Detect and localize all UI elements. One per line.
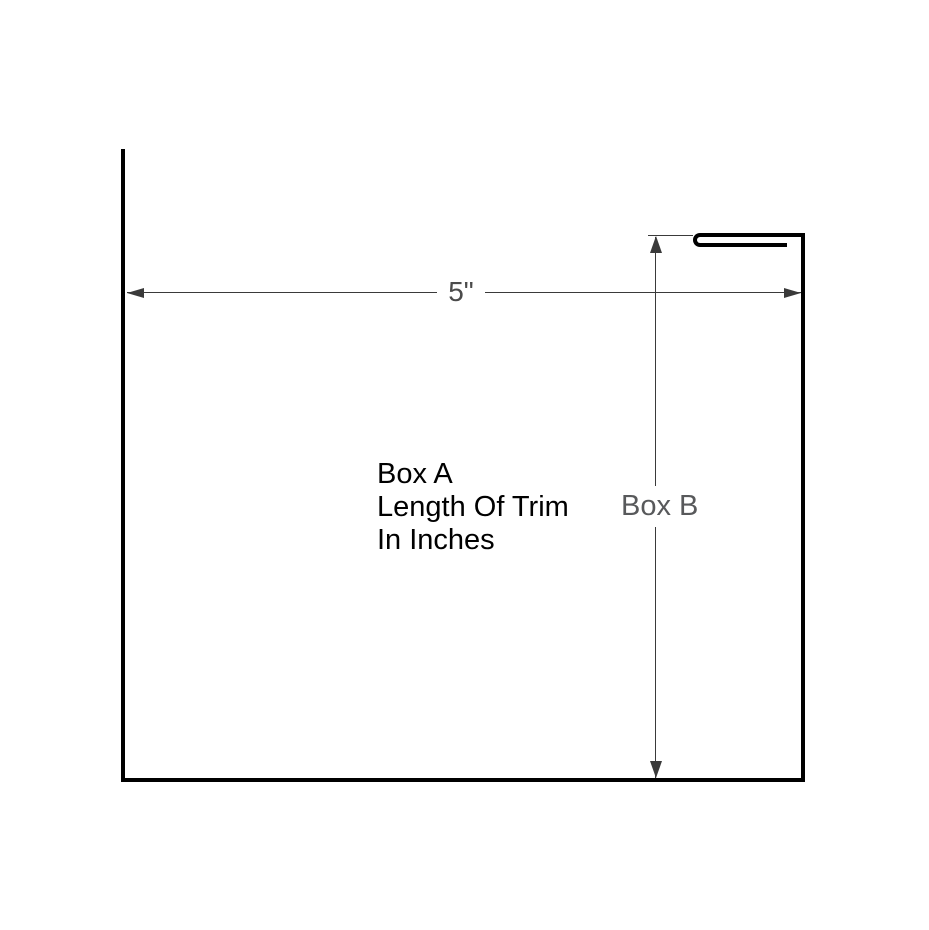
horizontal-dimension-label: 5" (437, 276, 485, 308)
hem-hook-return-edge (702, 243, 787, 247)
trim-profile-right-edge (801, 233, 805, 782)
vertical-dimension-label: Box B (620, 490, 699, 523)
dimension-arrow-up-icon (650, 236, 662, 253)
box-a-annotation-line3: In Inches (377, 524, 569, 557)
dimension-arrow-left-icon (127, 288, 144, 298)
trim-profile-left-edge (121, 149, 125, 782)
hem-hook-bend (693, 233, 705, 247)
box-a-annotation: Box A Length Of Trim In Inches (377, 458, 569, 557)
vertical-dimension-line-top-segment (655, 237, 656, 486)
trim-diagram-canvas: 5" Box B Box A Length Of Trim In Inches (0, 0, 929, 930)
dimension-arrow-right-icon (784, 288, 801, 298)
vertical-dimension-line-bottom-segment (655, 527, 656, 778)
box-a-annotation-line1: Box A (377, 458, 569, 491)
box-a-annotation-line2: Length Of Trim (377, 491, 569, 524)
horizontal-dimension-line-right-segment (478, 292, 801, 293)
dimension-arrow-down-icon (650, 761, 662, 778)
trim-profile-bottom-edge (121, 778, 805, 782)
horizontal-dimension-line-left-segment (127, 292, 445, 293)
hem-hook-top-edge (702, 233, 805, 237)
